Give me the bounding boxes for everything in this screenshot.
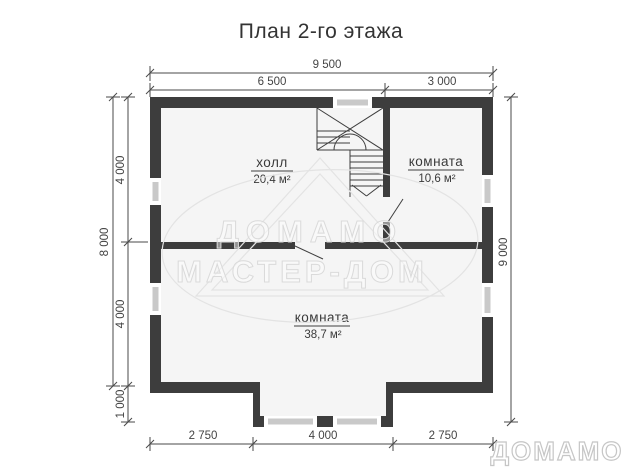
dim-width-right: 3 000 [428, 76, 457, 88]
dim-height-total-left: 8 000 [99, 228, 111, 257]
floor-plan-page: План 2-го этажа [0, 0, 627, 470]
wall-top [150, 97, 493, 108]
window-bay-left [264, 416, 317, 427]
wall-bottom-left [150, 382, 260, 393]
window-bay-right [333, 416, 381, 427]
window-left-lower [150, 283, 161, 315]
wall-bottom-right [386, 382, 493, 393]
window-right-upper [482, 175, 493, 207]
dim-height-lower: 4 000 [115, 300, 127, 329]
room-area-small-room: 10,6 м² [418, 173, 455, 185]
window-left-upper [150, 178, 161, 205]
dim-width-left: 6 500 [258, 76, 287, 88]
wall-right [482, 97, 493, 393]
dim-bottom-left: 2 750 [189, 430, 218, 442]
room-name-hall: холл [256, 155, 288, 170]
dim-width-total: 9 500 [313, 59, 342, 71]
room-name-small-room: комната [409, 154, 464, 169]
room-label-hall: холл 20,4 м² [251, 155, 293, 186]
dim-bay-depth: 1 000 [115, 390, 127, 419]
wall-left [150, 97, 161, 393]
window-top [333, 97, 372, 108]
wall-interior-vertical [383, 108, 390, 197]
watermark-brand-text: ДОМАМО [217, 214, 403, 249]
dim-height-upper: 4 000 [115, 156, 127, 185]
page-title: План 2-го этажа [239, 20, 403, 43]
brand-logo: ДОМАМО [490, 436, 623, 466]
floor-plan-canvas: План 2-го этажа [0, 0, 627, 470]
window-right-lower [482, 283, 493, 317]
dim-bottom-center: 4 000 [309, 430, 338, 442]
room-area-big-room: 38,7 м² [304, 329, 341, 341]
dim-height-total-right: 9 000 [498, 238, 510, 267]
watermark-subtitle-text: МАСТЕР-ДОМ [176, 254, 428, 289]
dim-bottom-right: 2 750 [429, 430, 458, 442]
